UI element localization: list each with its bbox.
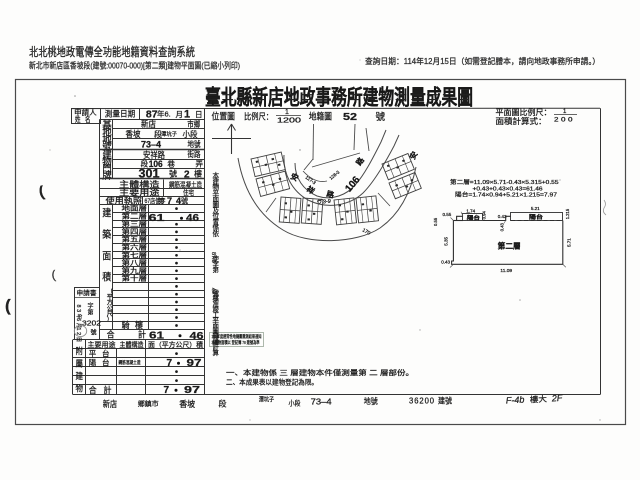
- svg-text:F-4b: F-4b: [506, 395, 525, 406]
- svg-text:面（平方公尺）積: 面（平方公尺）積: [148, 340, 203, 349]
- svg-text:0.94: 0.94: [482, 210, 487, 219]
- svg-text:97: 97: [184, 385, 201, 396]
- svg-text:1: 1: [285, 109, 289, 116]
- svg-text:0.43: 0.43: [498, 214, 507, 219]
- svg-text:170: 170: [361, 227, 371, 236]
- svg-text:段: 段: [219, 399, 227, 409]
- svg-text:1: 1: [563, 109, 567, 115]
- svg-text:5.21: 5.21: [531, 206, 540, 211]
- svg-text:新店: 新店: [141, 119, 156, 129]
- svg-text:1.215: 1.215: [565, 208, 570, 219]
- svg-text:臺北縣新店地政事務所建物測量成果圖: 臺北縣新店地政事務所建物測量成果圖: [205, 86, 473, 110]
- svg-text:位置圖: 位置圖: [212, 111, 236, 122]
- svg-text:號: 號: [376, 111, 386, 123]
- svg-text:第十層: 第十層: [122, 274, 148, 283]
- svg-text:第六層: 第六層: [122, 243, 148, 252]
- svg-text:段: 段: [141, 159, 149, 169]
- svg-text:一、本建物係 三 層建物本件僅測量第 二 層部份。: 一、本建物係 三 層建物本件僅測量第 二 層部份。: [226, 368, 414, 377]
- svg-text:5.35: 5.35: [444, 237, 449, 246]
- svg-text:第: 第: [88, 309, 94, 317]
- svg-text:第三層: 第三層: [122, 219, 148, 228]
- svg-text:1: 1: [184, 109, 190, 121]
- svg-text:街路: 街路: [188, 149, 201, 159]
- svg-text:1200: 1200: [277, 118, 301, 125]
- svg-text:二、本成果表以建物登記為限。: 二、本成果表以建物登記為限。: [226, 377, 318, 386]
- svg-text:第二層=11.09×5.71-0.43×5.315+0.55: 第二層=11.09×5.71-0.43×5.315+0.55: [450, 178, 559, 186]
- svg-text:鄉鎮市: 鄉鎮市: [138, 399, 159, 408]
- svg-text:建: 建: [76, 371, 84, 381]
- svg-text:號: 號: [91, 329, 97, 337]
- svg-text:第: 第: [213, 265, 220, 274]
- svg-text:姓名: 姓名: [75, 115, 95, 124]
- svg-text:查詢日期：114年12月15日（如需登記謄本，請向地政事務所: 查詢日期：114年12月15日（如需登記謄本，請向地政事務所申請。）: [365, 56, 600, 66]
- svg-text:日: 日: [195, 110, 203, 119]
- svg-text:11.09: 11.09: [500, 268, 512, 274]
- svg-text:小段: 小段: [183, 129, 198, 139]
- svg-text:計: 計: [104, 385, 112, 395]
- svg-text:第: 第: [158, 196, 165, 205]
- svg-text:潭坑子: 潭坑子: [161, 130, 177, 138]
- svg-text:安: 安: [407, 149, 420, 161]
- svg-text:陽台: 陽台: [529, 213, 544, 221]
- svg-text:比例尺：: 比例尺：: [244, 111, 273, 121]
- svg-text:第五層: 第五層: [122, 235, 148, 244]
- svg-text:小段: 小段: [289, 399, 301, 408]
- svg-text:樓: 樓: [194, 169, 202, 179]
- svg-text:附: 附: [76, 346, 84, 356]
- svg-text:第二層: 第二層: [122, 211, 148, 220]
- svg-text:2F: 2F: [550, 393, 563, 404]
- svg-text:弄: 弄: [196, 160, 204, 169]
- svg-text:(: (: [51, 268, 56, 282]
- svg-text:地籍圖: 地籍圖: [309, 111, 332, 122]
- svg-text:台: 台: [102, 348, 110, 358]
- svg-text:61: 61: [149, 213, 166, 224]
- svg-text:號: 號: [181, 196, 188, 205]
- svg-text:號: 號: [169, 169, 177, 179]
- svg-text:地號: 地號: [188, 139, 201, 149]
- svg-text:算: 算: [213, 348, 220, 357]
- svg-text:騎: 騎: [122, 320, 130, 330]
- svg-text:鋼筋混凝土造: 鋼筋混凝土造: [119, 359, 141, 366]
- svg-text:測量日期: 測量日期: [105, 109, 136, 119]
- svg-text:祥: 祥: [305, 183, 317, 196]
- svg-text:屬: 屬: [76, 359, 84, 369]
- svg-text:建: 建: [102, 207, 111, 220]
- svg-text:7: 7: [164, 385, 170, 396]
- svg-text:巷: 巷: [167, 160, 175, 169]
- svg-text:主要用途: 主要用途: [88, 340, 116, 349]
- svg-text:第二層: 第二層: [498, 242, 521, 251]
- svg-text:平: 平: [89, 349, 97, 358]
- svg-text:73–4: 73–4: [141, 139, 161, 149]
- svg-text:築: 築: [102, 228, 111, 241]
- svg-text:73–4: 73–4: [311, 397, 333, 406]
- svg-text:地號: 地號: [364, 396, 378, 406]
- svg-text:台: 台: [102, 357, 110, 367]
- svg-text:平面圖比例尺：: 平面圖比例尺：: [496, 107, 552, 117]
- svg-text:106: 106: [343, 174, 362, 194]
- svg-text:陽台=1.74×0.94+5.21×1.215=7.97: 陽台=1.74×0.94+5.21×1.215=7.97: [455, 190, 557, 198]
- svg-text:128-3: 128-3: [328, 169, 340, 181]
- svg-text:5.71: 5.71: [566, 238, 571, 247]
- svg-text:日: 日: [75, 337, 82, 342]
- svg-text:(: (: [5, 296, 11, 315]
- svg-text:合: 合: [107, 330, 115, 340]
- svg-text:陽: 陽: [89, 358, 97, 367]
- svg-text:計: 計: [138, 330, 146, 340]
- svg-text:46: 46: [186, 212, 199, 224]
- svg-text:）: ）: [107, 317, 113, 324]
- svg-text:月: 月: [176, 110, 184, 119]
- svg-text:主體構造: 主體構造: [120, 340, 144, 349]
- svg-text:新店: 新店: [103, 399, 118, 409]
- svg-text:3: 3: [75, 309, 81, 312]
- svg-text:61: 61: [149, 331, 165, 342]
- svg-text:36200: 36200: [409, 397, 435, 406]
- svg-text:面積計算式：: 面積計算式：: [496, 116, 547, 126]
- svg-text:住宅: 住宅: [183, 188, 194, 197]
- svg-text:97: 97: [187, 358, 203, 369]
- svg-text:潭坑子: 潭坑子: [259, 396, 275, 404]
- svg-text:3202: 3202: [82, 319, 101, 328]
- svg-text:依: 依: [213, 229, 220, 238]
- svg-text:第九層: 第九層: [122, 266, 148, 275]
- svg-text:面: 面: [102, 252, 111, 263]
- svg-text:5: 5: [75, 318, 81, 321]
- svg-text:200: 200: [554, 117, 575, 124]
- svg-text:7: 7: [167, 358, 173, 369]
- svg-text:0.43: 0.43: [441, 259, 450, 264]
- svg-text:申請書: 申請書: [77, 288, 98, 297]
- svg-text:0.43: 0.43: [500, 222, 505, 231]
- svg-text:香坡: 香坡: [126, 129, 141, 139]
- svg-text:8: 8: [75, 305, 81, 308]
- svg-text:安: 安: [289, 171, 300, 183]
- svg-text:0.55: 0.55: [443, 212, 452, 217]
- svg-text:0.55: 0.55: [433, 217, 438, 226]
- svg-text:52: 52: [343, 112, 358, 123]
- svg-text:3-9: 3-9: [323, 199, 332, 206]
- svg-text:1.74: 1.74: [466, 208, 475, 213]
- svg-text:陽台: 陽台: [467, 215, 480, 222]
- svg-text:路: 路: [353, 155, 366, 167]
- svg-text:第八層: 第八層: [122, 258, 148, 267]
- svg-text:物: 物: [76, 384, 84, 394]
- svg-text:鋼筋混凝土造: 鋼筋混凝土造: [169, 180, 202, 189]
- svg-text:市鄉: 市鄉: [187, 119, 200, 129]
- svg-text:地面層: 地面層: [122, 204, 148, 213]
- svg-text:(: (: [37, 183, 45, 201]
- svg-text:牌: 牌: [102, 169, 112, 182]
- svg-text:香坡: 香坡: [179, 399, 195, 409]
- svg-text:建號: 建號: [438, 395, 452, 405]
- svg-text:合: 合: [89, 385, 97, 395]
- svg-text:年6.: 年6.: [157, 109, 171, 119]
- svg-text:樓大: 樓大: [530, 394, 548, 405]
- svg-text:第四層: 第四層: [122, 227, 148, 236]
- svg-text:第七層: 第七層: [122, 250, 148, 259]
- svg-text:字: 字: [88, 302, 94, 310]
- svg-text:新北市新店區香坡段(建號:00070-000)[第二類]建物: 新北市新店區香坡段(建號:00070-000)[第二類]建物平面圖(已縮小列印): [29, 60, 240, 71]
- svg-text:積: 積: [102, 271, 111, 284]
- svg-text:46: 46: [190, 331, 205, 342]
